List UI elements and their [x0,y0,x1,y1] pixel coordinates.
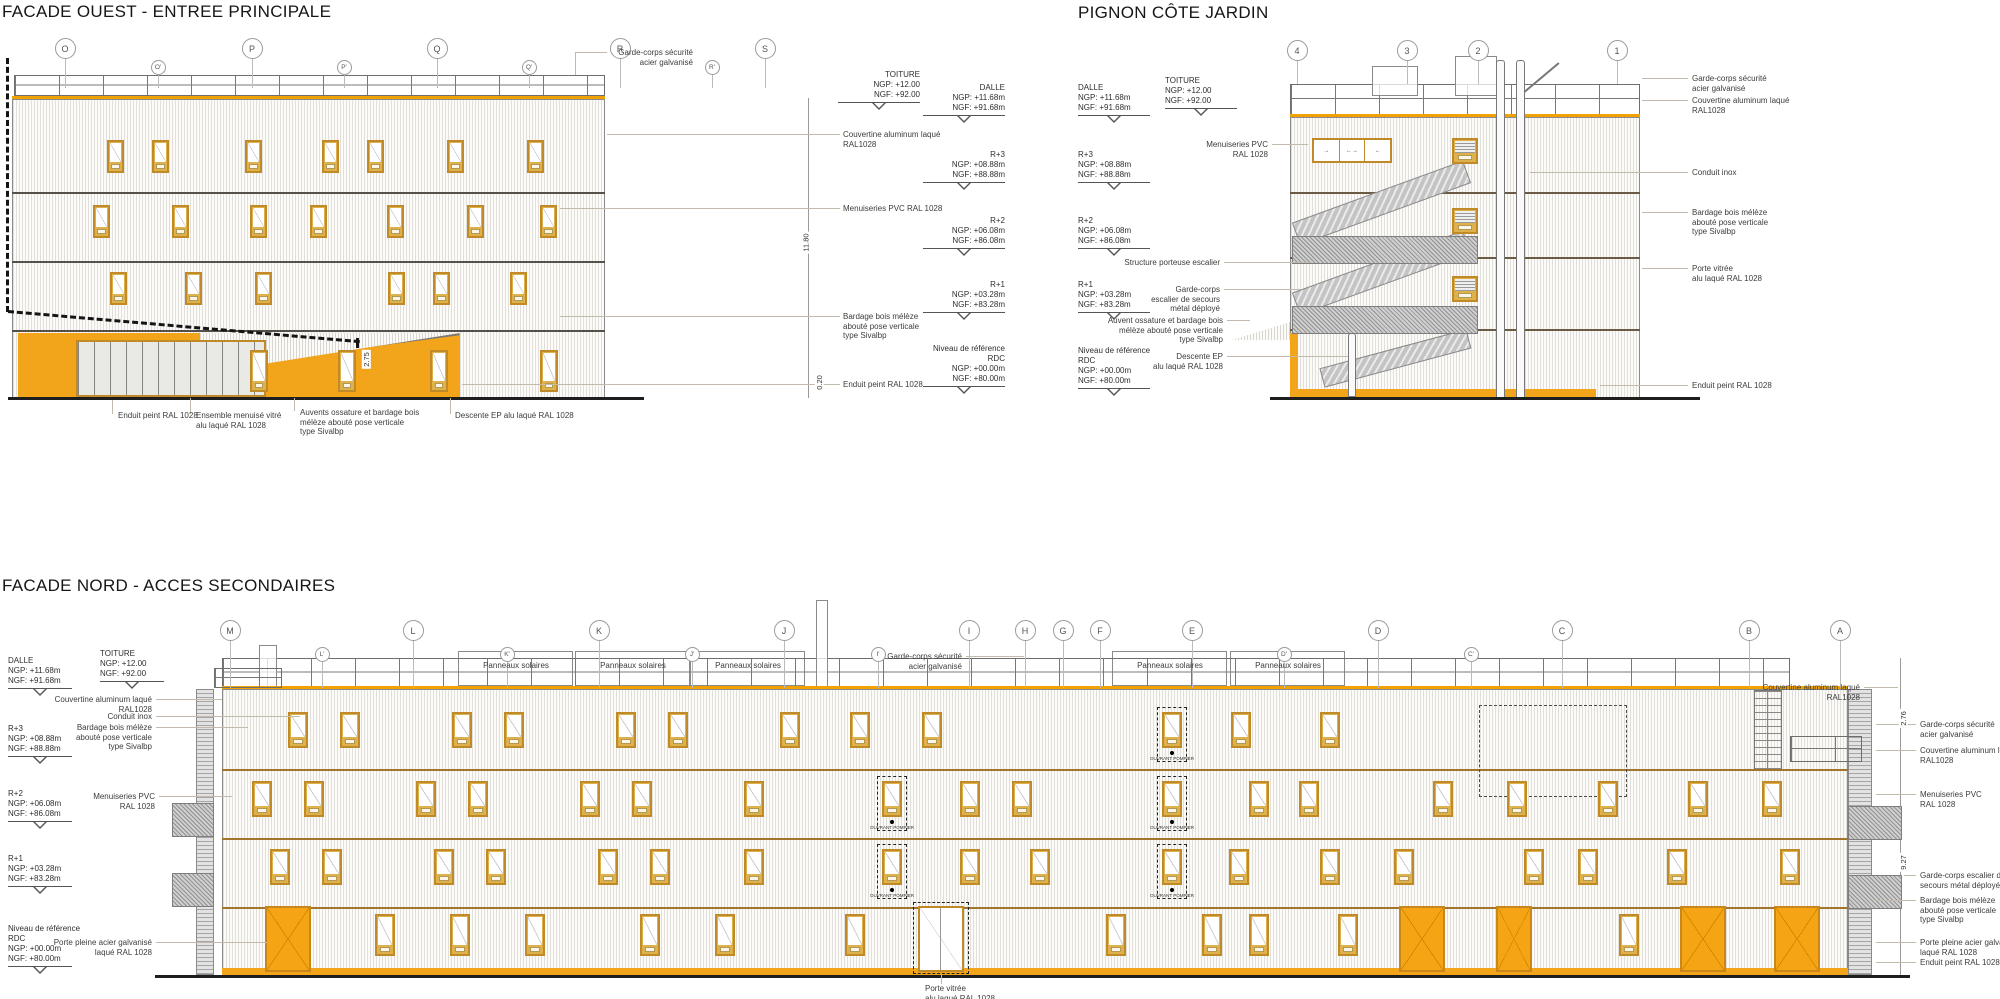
window [152,140,169,173]
grid-axis-line [437,59,438,88]
level-triangle-inner [1196,109,1206,114]
level-marker: TOITURE NGP: +12.00 NGF: +92.00 [100,649,164,690]
window-tag [531,164,539,169]
grid-axis-line [1562,641,1563,688]
window [387,205,404,238]
window-tag [585,808,595,813]
window-glass [1033,852,1047,874]
window-glass [471,784,485,806]
grid-axis-line [1478,61,1479,84]
grid-bubble: B [1739,620,1760,641]
window [288,712,308,748]
grid-axis-line [1749,641,1750,688]
window-tag [1254,808,1264,813]
level-text: TOITURE NGP: +12.00 NGF: +92.00 [100,649,164,679]
window-tag [421,808,431,813]
level-marker: Niveau de référence RDC NGP: +00.00m NGF… [923,344,1005,395]
level-triangle-inner [959,116,969,121]
grid-axis-line [322,662,323,688]
metal-mesh-guard [1848,875,1902,909]
window-glass [1397,852,1411,874]
window-glass [313,208,324,227]
window-glass [601,852,615,874]
annotation-label: Menuiseries PVC RAL 1028 [1920,790,1982,809]
leader-line [1224,289,1300,290]
leader-line [1876,794,1916,795]
window-glass [1581,852,1595,874]
window-glass [1436,784,1450,806]
metal-mesh-guard [1292,306,1478,334]
window-tag [749,808,759,813]
level-text: DALLE NGP: +11.68m NGF: +91.68m [923,83,1005,113]
annotation-label: Garde-corps sécurité acier galvanisé [618,48,693,67]
window-tag [509,739,519,744]
annotation-label: Enduit peint RAL 1028 [118,411,198,421]
window [1231,712,1251,748]
level-text: Niveau de référence RDC NGP: +00.00m NGF… [8,924,72,964]
window [430,350,448,392]
window-glass [1670,852,1684,874]
pompier-dot-icon [890,820,894,824]
window [640,914,660,956]
window-tag [530,947,540,952]
annotation-label: Menuiseries PVC RAL 1028 [843,204,942,214]
window-glass [671,715,685,737]
window-tag [255,383,264,388]
window-tag [514,296,522,301]
window [340,712,360,748]
level-triangle-inner [35,887,45,892]
level-datum-line [8,886,72,895]
grid-bubble: E [1182,620,1203,641]
window [250,205,267,238]
leader-line [1642,100,1688,101]
window [922,712,942,748]
annotation-label: Enduit peint RAL 1028 [843,380,923,390]
roof-guardrail [1790,736,1862,762]
louver-window [1452,138,1478,164]
grid-axis-line [1407,61,1408,84]
annotation-label: Panneaux solaires [715,661,781,671]
leader-line [112,400,113,414]
level-text: R+2 NGP: +06.08m NGF: +86.08m [923,216,1005,246]
leader-line [575,52,576,75]
grid-bubble: C [1552,620,1573,641]
metal-mesh-guard [1292,236,1478,264]
window-tag [637,808,647,813]
window [416,781,436,817]
pompier-caption: OUVRANT POMPIER [870,893,914,898]
window-glass [513,275,524,294]
window-tag [257,808,267,813]
window-tag [327,876,337,881]
window-tag [435,383,444,388]
grid-bubble: 3 [1397,40,1418,61]
grid-axis-line [1617,61,1618,84]
window-glass [255,784,269,806]
leader-line [1224,262,1310,263]
window-glass [653,852,667,874]
glazed-entrance [76,340,266,397]
window-glass [925,715,939,737]
leader-line [1904,875,1916,876]
orange-render [1290,389,1596,397]
annotation-label: Garde-corps sécurité acier galvanisé [887,652,962,671]
title-facade-ouest: FACADE OUEST - ENTREE PRINCIPALE [2,2,331,22]
window-glass [378,917,392,945]
grid-bubble: O' [151,60,166,75]
downpipe [1496,60,1505,398]
window-tag [156,164,164,169]
leader-line [156,942,267,943]
annotation-label: Panneaux solaires [483,661,549,671]
grid-bubble: 4 [1287,40,1308,61]
window [1012,781,1032,817]
window-glass [530,143,541,162]
window [960,849,980,885]
dashed-outline [913,902,969,974]
window [486,849,506,885]
window-tag [1017,808,1027,813]
window-tag [927,739,937,744]
window [1229,849,1249,885]
window [540,205,557,238]
grid-axis-line [65,59,66,88]
window [510,272,527,305]
window-tag [371,164,379,169]
leader-line [1642,78,1688,79]
annotation-label: Garde-corps escalier de secours métal dé… [1920,871,2000,890]
window-glass [643,917,657,945]
window [467,205,484,238]
window [744,849,764,885]
window-tag [111,164,119,169]
grid-bubble: K' [500,647,515,662]
window-glass [325,852,339,874]
window-tag [392,296,400,301]
window-tag [544,229,552,234]
leader-line [1876,750,1916,751]
window-tag [439,876,449,881]
grid-bubble: Q' [522,60,537,75]
window [185,272,202,305]
window-tag [451,164,459,169]
window-tag [259,296,267,301]
window-glass [391,275,402,294]
window-glass [1323,852,1337,874]
window [1667,849,1687,885]
level-text: R+1 NGP: +03.28m NGF: +83.28m [8,854,72,884]
level-triangle-inner [959,313,969,318]
window [250,350,268,392]
grid-axis-line [252,59,253,88]
annotation-label: Panneaux solaires [1137,661,1203,671]
window-tag [850,947,860,952]
level-datum-line [8,821,72,830]
window-tag [114,296,122,301]
level-text: TOITURE NGP: +12.00 NGF: +92.00 [838,70,920,100]
window-glass [325,143,336,162]
level-triangle-inner [1109,389,1119,394]
window [1249,781,1269,817]
solid-door [265,906,311,972]
window-glass [419,784,433,806]
orange-render [222,968,1848,975]
floor-line [222,907,1848,909]
grid-bubble: H [1015,620,1036,641]
annotation-label: Panneaux solaires [600,661,666,671]
window [172,205,189,238]
window-tag [855,739,865,744]
leader-line [1530,172,1688,173]
roof-equipment [1372,66,1418,96]
level-triangle-inner [959,249,969,254]
window-tag [293,739,303,744]
level-text: R+1 NGP: +03.28m NGF: +83.28m [923,280,1005,310]
roof-equipment [1455,56,1497,96]
window-glass [1252,784,1266,806]
window-glass [528,917,542,945]
level-datum-line [838,102,920,111]
window-tag [1399,876,1409,881]
window-glass [1015,784,1029,806]
window-glass [747,784,761,806]
grid-bubble: P' [337,60,352,75]
window-glass [1455,211,1475,223]
window [960,781,980,817]
window-glass [1601,784,1615,806]
annotation-label: Porte vitrée alu laqué RAL 1028 [925,984,995,999]
metal-mesh-guard [172,803,214,837]
level-triangle-inner [959,387,969,392]
annotation-label: Couvertine aluminum laqué RAL1028 [1920,746,2000,765]
level-triangle-inner [127,682,137,687]
window-tag [1603,808,1613,813]
level-text: Niveau de référence RDC NGP: +00.00m NGF… [1078,346,1150,386]
annotation-label: Enduit peint RAL 1028 [1692,381,1772,391]
annotation-label: Conduit inox [1692,168,1736,178]
annotation-label: Bardage bois mélèze abouté pose vertical… [1920,896,1996,925]
grid-bubble: 1 [1607,40,1628,61]
window [1780,849,1800,885]
leader-line [560,316,840,317]
level-triangle-inner [35,967,45,972]
ground-line [155,975,1910,978]
level-text: DALLE NGP: +11.68m NGF: +91.68m [1078,83,1150,113]
window-glass [96,208,107,227]
annotation-label: Ensemble menuisé vitré alu laqué RAL 102… [196,411,281,430]
downpipe [1516,60,1525,398]
solid-door [1496,906,1532,972]
window-tag [473,808,483,813]
grid-axis-line [878,662,879,688]
level-text: R+3 NGP: +08.88m NGF: +88.88m [923,150,1005,180]
roof-guardrail [14,75,605,96]
leader-line [575,52,607,53]
dimension-label: 2.75 [362,350,371,369]
window [504,712,524,748]
solid-door [1680,906,1726,972]
window-glass [291,715,305,737]
level-datum-line [923,115,1005,124]
window-tag [275,876,285,881]
window-tag [343,383,352,388]
window-glass [583,784,597,806]
window [107,140,124,173]
window-tag [720,947,730,952]
level-datum-line [923,248,1005,257]
window-tag [380,947,390,952]
dimension-label: 0.20 [815,373,824,392]
window [388,272,405,305]
window-glass [718,917,732,945]
grid-bubble: 2 [1468,40,1489,61]
window-tag [1458,293,1472,298]
window-glass [1455,279,1475,291]
annotation-label: Menuiseries PVC RAL 1028 [1206,140,1268,159]
title-facade-nord: FACADE NORD - ACCES SECONDAIRES [2,576,335,596]
window-glass [543,353,555,381]
level-marker: R+2 NGP: +06.08m NGF: +86.08m [8,789,72,830]
level-marker: R+1 NGP: +03.28m NGF: +83.28m [1078,280,1150,321]
annotation-label: Garde-corps sécurité acier galvanisé [1692,74,1767,93]
window-tag [1234,876,1244,881]
ground-line [8,397,644,400]
pompier-dot-icon [1170,751,1174,755]
window-tag [673,739,683,744]
floor-line [12,192,605,194]
roof-guardrail [214,668,282,688]
leader-line [1642,268,1688,269]
level-triangle-inner [35,757,45,762]
window-tag [471,229,479,234]
window [1202,914,1222,956]
window-tag [1438,808,1448,813]
window-glass [307,784,321,806]
grid-axis-line [230,641,231,688]
window [527,140,544,173]
window-glass [783,715,797,737]
grid-bubble: K [589,620,610,641]
leader-line [1227,320,1250,321]
grid-axis-line [158,75,159,88]
window-glass [489,852,503,874]
grid-bubble: J' [685,647,700,662]
level-datum-line [8,966,72,975]
window-glass [963,784,977,806]
window-tag [785,739,795,744]
level-datum-line [1165,108,1237,117]
window-glass [470,208,481,227]
window [1578,849,1598,885]
level-triangle-inner [35,689,45,694]
window-glass [1691,784,1705,806]
window-glass [1232,852,1246,874]
window-tag [1693,808,1703,813]
ground-line [1270,397,1700,400]
pompier-caption: OUVRANT POMPIER [1150,756,1194,761]
grid-axis-line [712,75,713,88]
window-glass [747,852,761,874]
window-tag [254,229,262,234]
window-tag [391,229,399,234]
annotation-label: Bardage bois mélèze abouté pose vertical… [843,312,919,341]
window-tag [314,229,322,234]
dimension-label: 2.76 [1899,709,1908,728]
window [1688,781,1708,817]
level-text: R+3 NGP: +08.88m NGF: +88.88m [1078,150,1150,180]
window-tag [176,229,184,234]
annotation-label: Auvents ossature et bardage bois mélèze … [300,408,419,437]
window-glass [450,143,461,162]
window-tag [1767,808,1777,813]
window-tag [97,229,105,234]
window-glass [1205,917,1219,945]
boundary-dashed-line [6,58,9,312]
solid-door [1774,906,1820,972]
grid-axis-line [1378,641,1379,688]
window-tag [965,808,975,813]
window [668,712,688,748]
leader-line [607,134,840,135]
metal-mesh-guard [172,873,214,907]
leader-line [156,716,300,717]
window-glass [1765,784,1779,806]
leader-line [1272,144,1308,145]
grid-axis-line [529,75,530,88]
annotation-label: Descente EP alu laqué RAL 1028 [1153,352,1223,371]
leader-line [156,699,222,700]
window [1106,914,1126,956]
leader-line [1876,724,1916,725]
level-triangle-inner [959,183,969,188]
window-glass [1252,917,1266,945]
window [110,272,127,305]
annotation-label: Bardage bois mélèze abouté pose vertical… [1692,208,1768,237]
level-marker: TOITURE NGP: +12.00 NGF: +92.00 [1165,76,1237,117]
window-tag [749,876,759,881]
window-tag [621,739,631,744]
title-pignon-jardin: PIGNON CÔTE JARDIN [1078,3,1269,23]
canopy-hatch [1232,322,1290,340]
window-tag [645,947,655,952]
annotation-label: Garde-corps escalier de secours métal dé… [1151,285,1220,314]
annotation-label: Couvertine aluminum laqué RAL1028 [843,130,940,149]
pompier-caption: OUVRANT POMPIER [1150,893,1194,898]
level-marker: R+1 NGP: +03.28m NGF: +83.28m [8,854,72,895]
window-tag [1035,876,1045,881]
slider-pane-arrow-icon: → [1314,140,1340,161]
window [1619,914,1639,956]
annotation-label: Porte vitrée alu laqué RAL 1028 [1692,264,1762,283]
leader-line [560,208,840,209]
orange-render [1290,333,1298,397]
grid-axis-line [1840,641,1841,688]
level-text: DALLE NGP: +11.68m NGF: +91.68m [8,656,72,686]
grid-bubble: L' [315,647,330,662]
grid-axis-line [692,662,693,688]
grid-bubble: C' [1464,647,1479,662]
grid-axis-line [344,75,345,88]
window-glass [155,143,166,162]
level-marker: R+2 NGP: +06.08m NGF: +86.08m [1078,216,1150,257]
window [1762,781,1782,817]
window-glass [188,275,199,294]
annotation-label: Panneaux solaires [1255,661,1321,671]
floor-line [12,261,605,263]
grid-bubble: P [242,38,263,59]
window-tag [1624,947,1634,952]
